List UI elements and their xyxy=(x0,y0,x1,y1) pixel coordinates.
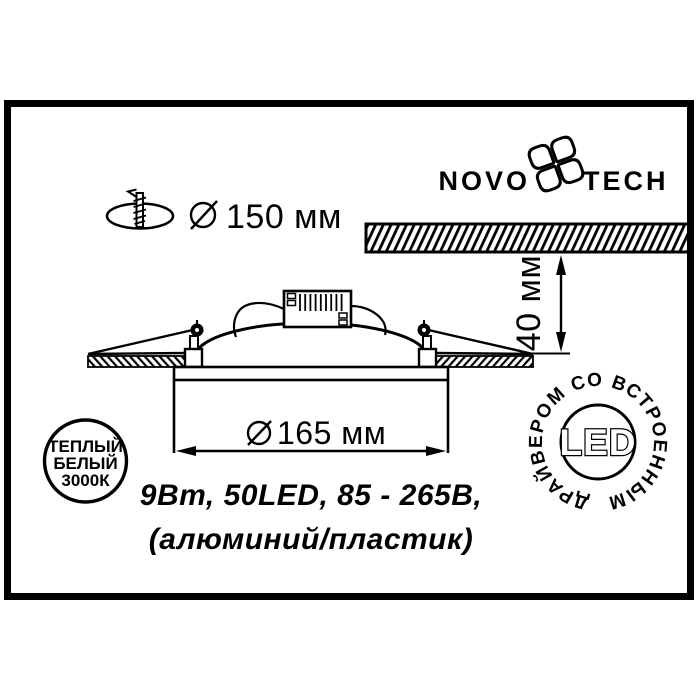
diameter-icon xyxy=(248,421,271,445)
flange-right xyxy=(436,356,533,367)
ceiling-section xyxy=(366,224,692,252)
brand-word-left: NOVO xyxy=(438,166,530,196)
fixture-diameter-label: 165 мм xyxy=(277,415,386,451)
drill-hole-icon xyxy=(107,190,173,229)
flange-left xyxy=(88,356,186,367)
led-badge: LED ДРАЙВЕРОМ СО ВСТРОЕННЫМ xyxy=(526,370,670,514)
product-diagram: NOVO TECH 150 мм xyxy=(0,0,700,700)
product-spec-sheet: NOVO TECH 150 мм xyxy=(0,0,700,700)
warm-white-line-3: 3000К xyxy=(61,471,110,490)
warm-white-badge: ТЕПЛЫЙ БЕЛЫЙ 3000К xyxy=(45,420,127,502)
brand-word-right: TECH xyxy=(583,166,669,196)
fixture-diameter-dimension: 165 мм xyxy=(176,415,446,456)
spec-text: 9Вт, 50LED, 85 - 265В, (алюминий/пластик… xyxy=(140,479,482,556)
diameter-icon xyxy=(191,201,217,229)
novotech-flower-icon xyxy=(527,135,585,193)
led-badge-center: LED xyxy=(560,422,637,463)
brand-logo: NOVO TECH xyxy=(438,135,668,196)
cutout-hole-callout: 150 мм xyxy=(107,190,342,237)
spec-line-1: 9Вт, 50LED, 85 - 265В, xyxy=(140,479,482,512)
spec-line-2: (алюминий/пластик) xyxy=(149,523,473,556)
recess-depth-dimension: 40 мм xyxy=(510,255,570,354)
led-driver-box xyxy=(284,291,351,327)
wire-left xyxy=(234,303,284,337)
cutout-diameter-label: 150 мм xyxy=(226,198,342,236)
recess-depth-label: 40 мм xyxy=(510,255,548,352)
